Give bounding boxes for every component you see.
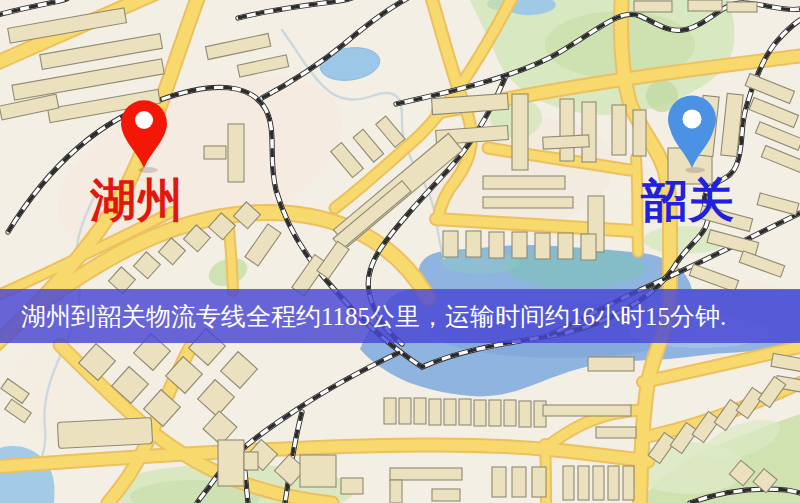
map-canvas: 湖州 韶关 湖州到韶关物流专线全程约1185公里，运输时间约16小时15分钟. [0, 0, 800, 503]
route-info-banner: 湖州到韶关物流专线全程约1185公里，运输时间约16小时15分钟. [0, 289, 800, 343]
map-image [0, 0, 800, 503]
route-info-text: 湖州到韶关物流专线全程约1185公里，运输时间约16小时15分钟. [0, 289, 800, 344]
origin-city-label: 湖州 [90, 177, 184, 223]
destination-city-label: 韶关 [641, 177, 735, 223]
